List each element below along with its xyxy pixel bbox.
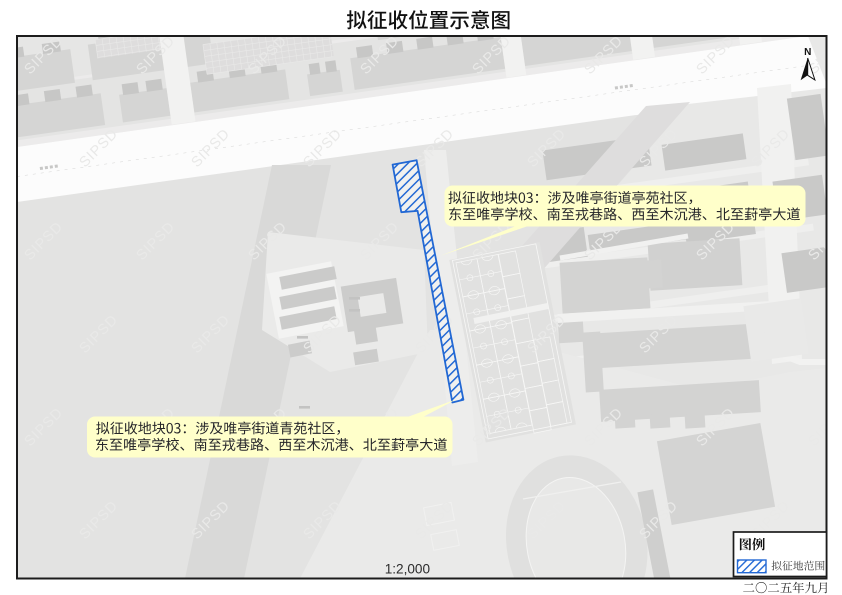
svg-text:N: N <box>804 47 811 58</box>
svg-text:1:2,000: 1:2,000 <box>385 561 431 576</box>
svg-text:SIPSD: SIPSD <box>134 591 179 595</box>
svg-text:SIPSD: SIPSD <box>470 591 515 595</box>
svg-text:SIPSD: SIPSD <box>694 591 739 595</box>
svg-text:SIPSD: SIPSD <box>806 591 842 595</box>
svg-text:SIPSD: SIPSD <box>358 591 403 595</box>
svg-text:SIPSD: SIPSD <box>582 591 627 595</box>
svg-text:SIPSD: SIPSD <box>22 591 67 595</box>
svg-text:SIPSD: SIPSD <box>246 591 291 595</box>
